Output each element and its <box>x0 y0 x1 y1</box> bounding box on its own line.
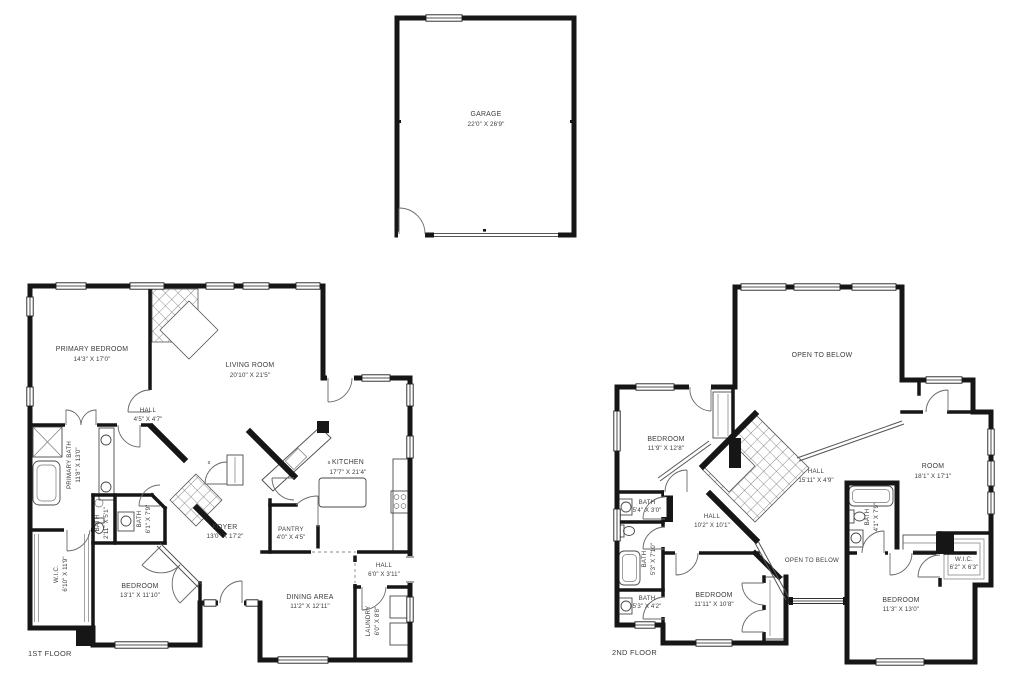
room-label-living-room-dims: 20'10" X 21'5" <box>230 372 271 379</box>
room-label-garage-dims: 22'0" X 26'9" <box>468 121 505 128</box>
room-label-pantry-name: PANTRY <box>278 526 304 533</box>
room-label-bath-hall-name: BATH <box>136 511 143 528</box>
room-label-bedroom-se-name: BEDROOM <box>882 597 919 604</box>
room-label-laundry-dims: 6'0" X 8'8" <box>374 607 381 636</box>
room-label-foyer-dims: 13'0" X 17'2" <box>207 533 244 540</box>
room-label-room-name: ROOM <box>922 463 944 470</box>
room-label-primary-bedroom-dims: 14'3" X 17'0" <box>74 356 111 363</box>
room-label-kitchen-dims: 17'7" X 21'4" <box>330 469 367 476</box>
room-label-bath-sw-name: BATH <box>639 595 656 602</box>
room-label-laundry-name: LAUNDRY <box>365 606 372 637</box>
room-label-primary-bath-dims: 11'8" X 13'0" <box>75 447 82 482</box>
room-label-dining-dims: 11'2" X 12'11" <box>290 603 330 610</box>
room-label-bedroom-s-name: BEDROOM <box>695 592 732 599</box>
room-label-bath-small-name: BATH <box>94 515 101 532</box>
room-label-bath-hall-dims: 6'1" X 7'9" <box>145 505 152 534</box>
room-label-bedroom-nw-dims: 11'9" X 12'8" <box>648 445 684 452</box>
room-label-hall-landing-dims: 15'11" X 4'9" <box>798 477 833 484</box>
garage-plan: GARAGE 22'0" X 26'9" <box>395 15 576 239</box>
room-label-bedroom-s-dims: 11'11" X 10'8" <box>694 601 734 608</box>
room-label-primary-bath-name: PRIMARY BATH <box>66 441 73 489</box>
room-label-open-below-top: OPEN TO BELOW <box>792 352 853 359</box>
room-label-pantry-dims: 4'0" X 4'5" <box>277 534 306 541</box>
switch-marker-2: s <box>328 460 331 466</box>
room-label-bedroom-se-dims: 11'3" X 13'0" <box>883 606 919 613</box>
room-label-wic2-name: W.I.C. <box>955 556 973 563</box>
room-label-dining-name: DINING AREA <box>286 594 333 601</box>
room-label-hall-rear-name: HALL <box>376 562 393 569</box>
room-label-hall-rear-dims: 6'0" X 3'11" <box>368 571 400 578</box>
room-label-bath-e-name: BATH <box>864 509 871 526</box>
room-label-wic1-name: W.I.C. <box>53 565 60 583</box>
floor-title-second: 2ND FLOOR <box>612 648 657 657</box>
room-label-hall-center-dims: 10'2" X 10'1" <box>694 522 730 529</box>
first-floor-plan: PRIMARY BEDROOM 14'3" X 17'0" LIVING ROO… <box>27 283 414 663</box>
f1-door-gaps <box>64 375 414 607</box>
switch-marker-1: s <box>208 460 211 466</box>
room-label-wic1-dims: 6'10" X 11'9" <box>62 556 69 591</box>
room-label-hall-small-name: HALL <box>140 407 157 414</box>
room-label-foyer-name: FOYER <box>213 524 238 531</box>
second-floor-plan: OPEN TO BELOW BEDROOM 11'9" X 12'8" HALL… <box>612 284 994 665</box>
room-label-bath-w-dims: 5'3" X 7'10" <box>650 543 657 575</box>
f2-doors <box>643 387 948 632</box>
room-label-living-room-name: LIVING ROOM <box>226 362 275 369</box>
room-label-bath-w-name: BATH <box>641 551 648 568</box>
room-label-bath-nw-dims: 5'4" X 3'0" <box>633 507 662 514</box>
floor-plan-svg: GARAGE 22'0" X 26'9" <box>0 0 1024 683</box>
room-label-bedroom1-dims: 13'1" X 11'10" <box>120 592 160 599</box>
room-label-hall-center-name: HALL <box>704 513 721 520</box>
f2-stairs <box>701 414 809 522</box>
room-label-bedroom-nw-name: BEDROOM <box>647 436 684 443</box>
room-label-bedroom1-name: BEDROOM <box>121 583 158 590</box>
f1-stairs <box>152 289 222 526</box>
floor-title-first: 1ST FLOOR <box>28 649 72 658</box>
room-label-garage-name: GARAGE <box>471 111 502 118</box>
room-label-bath-sw-dims: 5'3" X 4'2" <box>633 603 662 610</box>
floor-plan-page: GARAGE 22'0" X 26'9" <box>0 0 1024 683</box>
room-label-open-below-mid: OPEN TO BELOW <box>785 557 839 564</box>
room-label-bath-nw-name: BATH <box>639 499 656 506</box>
room-label-kitchen-name: KITCHEN <box>332 459 364 466</box>
room-label-hall-landing-name: HALL <box>808 468 825 475</box>
room-label-room-dims: 18'1" X 17'1" <box>915 473 952 480</box>
garage-door-opening <box>434 232 558 239</box>
garage-entry-door <box>398 208 425 238</box>
room-label-bath-e-dims: 4'1" X 7'9" <box>873 503 880 532</box>
room-label-hall-small-dims: 4'5" X 4'7" <box>134 416 163 423</box>
room-label-wic2-dims: 6'2" X 6'3" <box>950 564 979 571</box>
room-label-primary-bedroom-name: PRIMARY BEDROOM <box>56 346 128 353</box>
garage-window <box>426 15 462 21</box>
room-label-bath-small-dims: 2'11" X 5'1" <box>103 507 110 539</box>
